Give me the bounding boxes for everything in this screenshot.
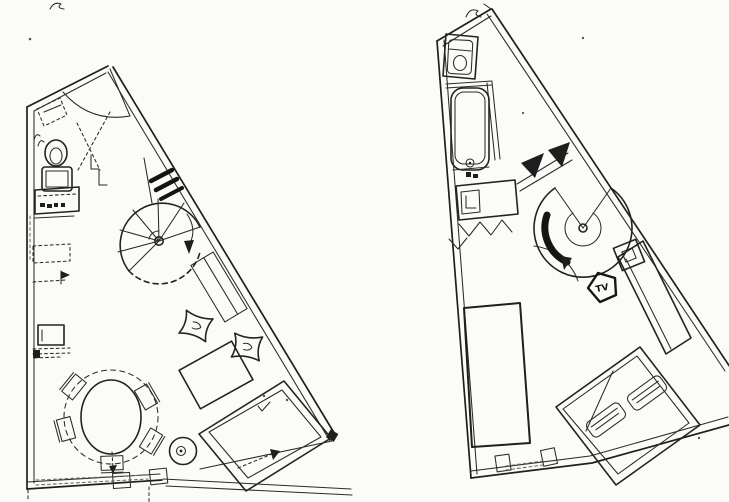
toilet-upper xyxy=(443,34,478,79)
right-plan-walls xyxy=(437,9,729,478)
kitchen-counters xyxy=(33,187,79,284)
tv-pedestal: TV xyxy=(588,273,616,302)
entry-door xyxy=(63,69,130,117)
floor-cushion-2 xyxy=(231,333,262,361)
pillow-2 xyxy=(626,374,669,412)
spiral-staircase-upper xyxy=(534,188,632,281)
wardrobe xyxy=(464,303,530,447)
refrigerator xyxy=(33,325,70,358)
pillow-1 xyxy=(585,401,628,439)
wc-toilet xyxy=(34,112,110,191)
floor-cushion-1 xyxy=(179,310,213,341)
coffee-table xyxy=(179,341,253,409)
dining-chairs xyxy=(54,372,165,472)
round-side-table xyxy=(170,438,197,465)
bathtub xyxy=(451,88,489,178)
floor-plan-drawing: TV xyxy=(0,0,729,502)
stair-partition-wedges xyxy=(517,142,572,191)
sofa xyxy=(199,381,331,491)
scan-stray-marks xyxy=(29,3,64,40)
left-floor-plan xyxy=(27,3,352,502)
tv-label: TV xyxy=(595,283,610,296)
wall-bench xyxy=(191,252,247,322)
corner-shelf xyxy=(37,98,67,126)
desk-shelf xyxy=(618,241,691,354)
floor-plan-scan: TV xyxy=(0,0,729,502)
right-floor-plan: TV xyxy=(437,4,729,485)
